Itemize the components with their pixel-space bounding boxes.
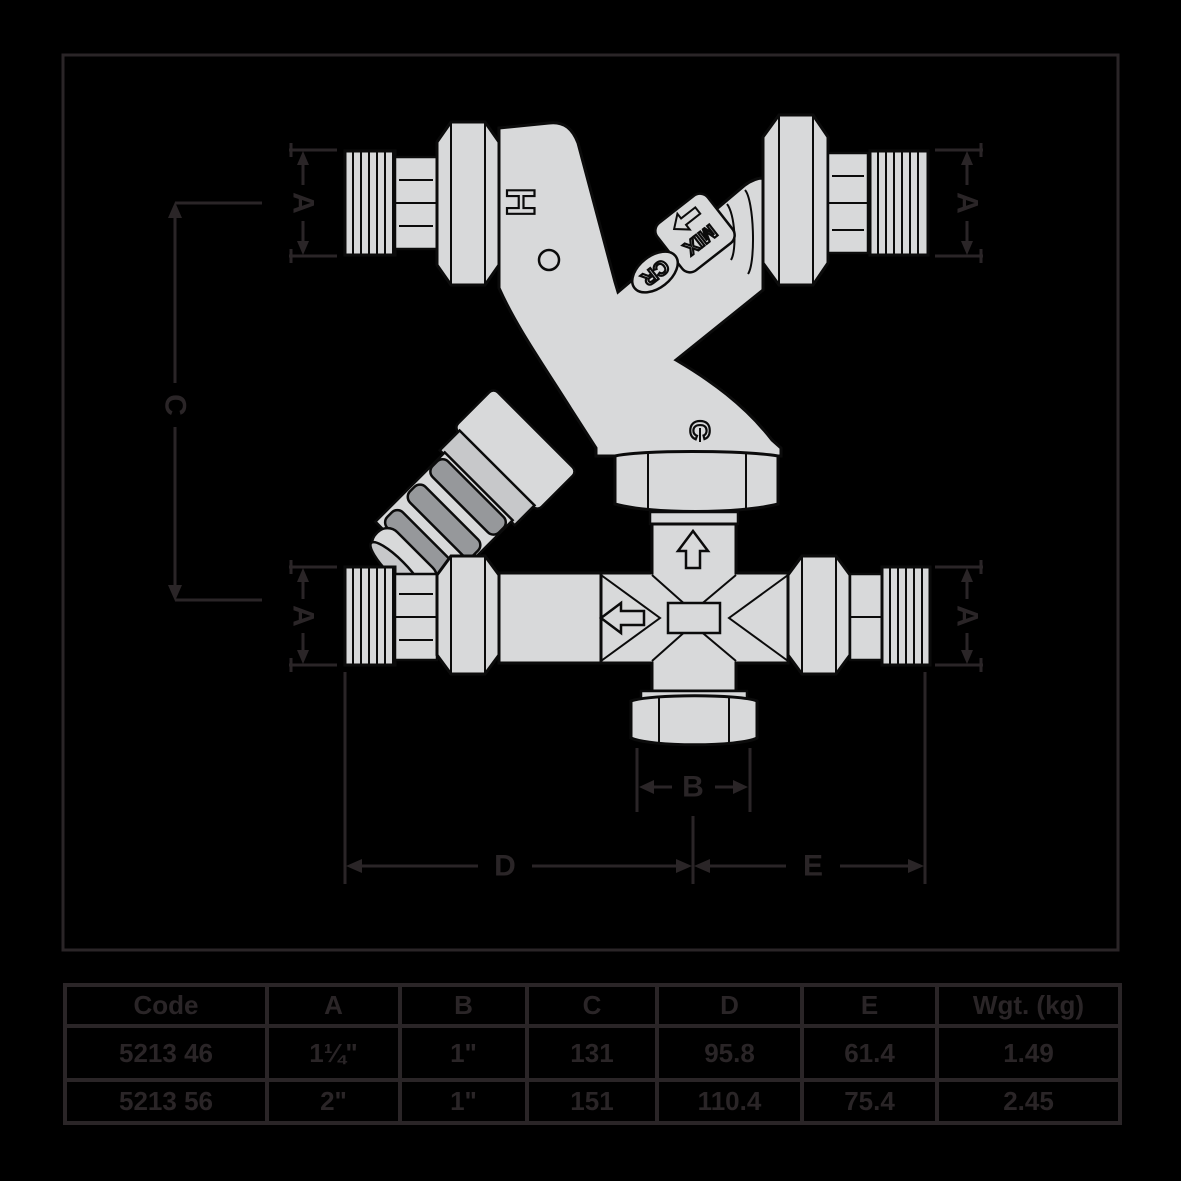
- table-cell: 1.49: [937, 1026, 1120, 1080]
- dim-label-d: D: [494, 850, 516, 883]
- technical-drawing-page: H MIX CR C: [0, 0, 1181, 1181]
- union-nut: [763, 115, 828, 285]
- table-cell: 2.45: [937, 1080, 1120, 1123]
- dim-label-b: B: [682, 771, 704, 804]
- bottom-port-union: [631, 691, 757, 745]
- table-cell: 1¼": [267, 1026, 400, 1080]
- table-cell: 1": [400, 1080, 527, 1123]
- dim-A-top-right: A: [935, 143, 984, 263]
- bottom-right-connection: [788, 556, 930, 674]
- center-union: [615, 452, 778, 525]
- valve-illustration: H MIX CR C: [345, 115, 930, 745]
- table-header-code: Code: [65, 985, 267, 1026]
- dim-A-bottom-left: A: [287, 560, 338, 672]
- table-cell-code: 5213 56: [65, 1080, 267, 1123]
- union-nut: [437, 556, 499, 674]
- table-header-e: E: [802, 985, 937, 1026]
- table-cell: 1": [400, 1026, 527, 1080]
- body-nub: [539, 250, 559, 270]
- dim-label-a: A: [287, 192, 320, 214]
- dim-label-c: C: [159, 394, 192, 416]
- dim-A-top-left: A: [287, 143, 338, 263]
- dim-label-e: E: [803, 850, 823, 883]
- table-row: 5213 46 1¼" 1" 131 95.8 61.4 1.49: [65, 1026, 1120, 1080]
- dim-B-bottom-port: B: [637, 748, 750, 812]
- dim-A-bottom-right: A: [935, 560, 984, 672]
- dim-label-a: A: [287, 605, 320, 627]
- table-header-c: C: [527, 985, 657, 1026]
- table-cell: 131: [527, 1026, 657, 1080]
- bottom-left-connection: [345, 556, 499, 674]
- hot-marking: H: [498, 188, 542, 217]
- union-nut: [788, 556, 850, 674]
- table-cell: 61.4: [802, 1026, 937, 1080]
- table-cell: 2": [267, 1080, 400, 1123]
- dim-label-a: A: [951, 605, 984, 627]
- dim-label-a: A: [951, 192, 984, 214]
- table-cell: 151: [527, 1080, 657, 1123]
- top-right-connection: [763, 115, 928, 285]
- table-header-b: B: [400, 985, 527, 1026]
- spec-table: Code A B C D E Wgt. (kg) 5213 46 1¼" 1" …: [63, 983, 1122, 1125]
- table-cell-code: 5213 46: [65, 1026, 267, 1080]
- dim-height-C: C: [159, 202, 263, 601]
- top-left-connection: [345, 122, 499, 285]
- table-header-d: D: [657, 985, 802, 1026]
- table-header-weight: Wgt. (kg): [937, 985, 1120, 1026]
- table-cell: 110.4: [657, 1080, 802, 1123]
- union-nut: [437, 122, 499, 285]
- table-cell: 95.8: [657, 1026, 802, 1080]
- cold-marking: C: [685, 420, 716, 442]
- table-row: 5213 56 2" 1" 151 110.4 75.4 2.45: [65, 1080, 1120, 1123]
- center-plate: [668, 603, 720, 633]
- table-header-a: A: [267, 985, 400, 1026]
- table-header-row: Code A B C D E Wgt. (kg): [65, 985, 1120, 1026]
- mixing-valve-body: H MIX CR C: [498, 123, 781, 456]
- table-cell: 75.4: [802, 1080, 937, 1123]
